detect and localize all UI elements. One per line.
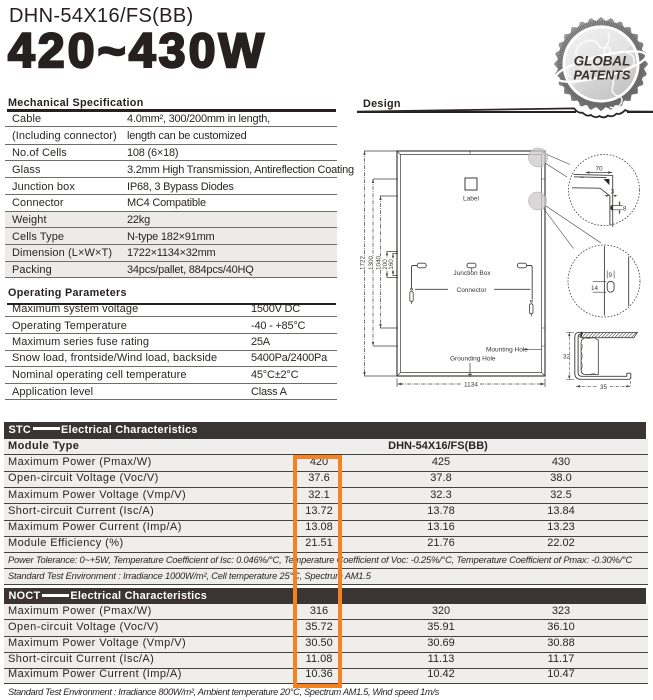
svg-text:GLOBAL: GLOBAL <box>574 54 631 69</box>
svg-text:160: 160 <box>388 259 395 270</box>
svg-text:35: 35 <box>600 384 608 391</box>
svg-text:1134: 1134 <box>464 381 478 388</box>
svg-text:Label: Label <box>463 196 479 203</box>
svg-text:1300: 1300 <box>368 256 375 271</box>
svg-text:9: 9 <box>609 272 613 279</box>
svg-text:14: 14 <box>591 285 599 292</box>
svg-text:Grounding Hole: Grounding Hole <box>450 356 496 363</box>
svg-text:Connector: Connector <box>457 287 488 294</box>
svg-text:Mounting Hole: Mounting Hole <box>486 347 528 354</box>
svg-text:1722: 1722 <box>360 256 367 271</box>
svg-text:32: 32 <box>563 354 571 361</box>
svg-text:3: 3 <box>611 188 615 195</box>
svg-text:70: 70 <box>595 166 603 173</box>
svg-text:PATENTS: PATENTS <box>574 69 632 83</box>
svg-text:8: 8 <box>623 206 627 213</box>
svg-text:Junction Box: Junction Box <box>453 270 491 277</box>
